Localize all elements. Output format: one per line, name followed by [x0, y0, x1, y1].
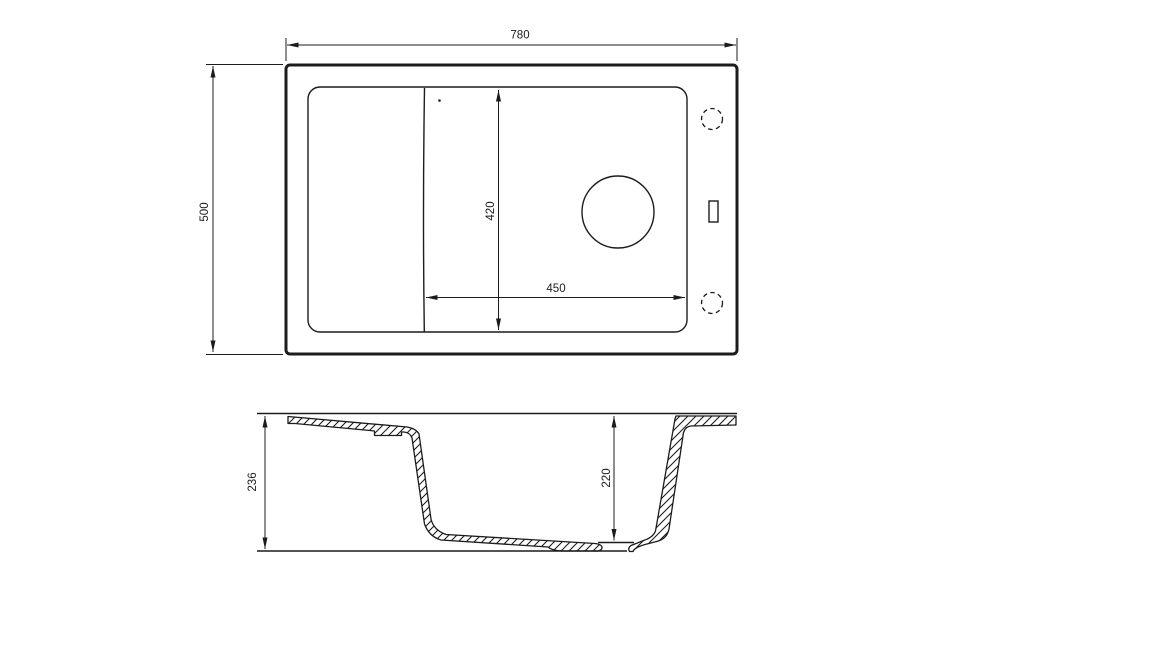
dimension-label-bowl-width: 450 — [546, 283, 565, 295]
bowl-divider-line — [423, 88, 424, 332]
reference-dot — [438, 99, 441, 102]
top-view: 780 500 420 450 — [199, 30, 737, 355]
dimension-bowl-height: 220 — [601, 416, 614, 541]
section-profile-right — [629, 416, 736, 552]
dimension-overall-depth: 500 — [199, 65, 283, 355]
dimension-label-bowl-height: 220 — [601, 468, 613, 487]
dimension-label-overall-height: 236 — [247, 472, 259, 491]
dimension-bowl-width: 450 — [426, 283, 685, 298]
dimension-label-bowl-depth: 420 — [485, 201, 497, 220]
bowl-inner-outline — [308, 87, 687, 332]
dimension-label-overall-depth: 500 — [199, 202, 211, 221]
dimension-overall-width: 780 — [286, 30, 737, 62]
section-profile-left — [288, 417, 602, 552]
sink-outer-rim — [286, 65, 737, 354]
tap-hole-top-circle — [702, 109, 723, 130]
dimension-label-overall-width: 780 — [510, 30, 529, 42]
sink-technical-drawing: 780 500 420 450 — [0, 0, 1152, 648]
drain-hole-circle — [582, 176, 654, 248]
dimension-overall-height: 236 — [247, 416, 265, 549]
tap-hole-bottom-circle — [702, 293, 723, 314]
overflow-slot — [709, 201, 718, 222]
dimension-bowl-depth: 420 — [485, 90, 499, 330]
section-view: 236 220 — [247, 414, 737, 552]
drawing-canvas: 780 500 420 450 — [0, 0, 1152, 648]
